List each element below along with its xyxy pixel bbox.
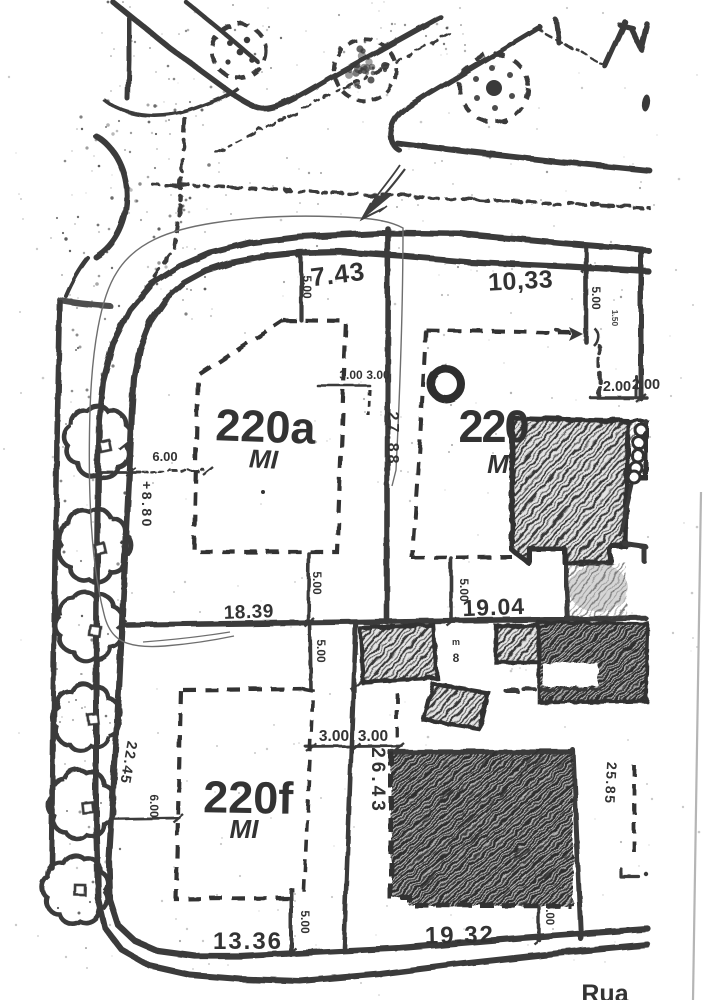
- svg-text:220: 220: [458, 401, 528, 452]
- svg-text:MI: MI: [248, 443, 279, 475]
- svg-text:2.00: 2.00: [632, 377, 660, 393]
- svg-text:1.50: 1.50: [610, 310, 620, 327]
- svg-text:Rua: Rua: [581, 980, 629, 1000]
- svg-text:m: m: [452, 637, 460, 647]
- svg-text:3.00: 3.00: [358, 728, 388, 745]
- svg-text:3.00: 3.00: [366, 368, 390, 382]
- svg-text:5.00: 5.00: [298, 910, 312, 934]
- svg-text:27.88: 27.88: [384, 411, 401, 466]
- svg-text:6.00: 6.00: [152, 449, 177, 464]
- svg-text:MI: MI: [230, 814, 260, 844]
- svg-text:M: M: [487, 449, 510, 479]
- svg-text:13.36: 13.36: [213, 928, 283, 955]
- svg-text:3.00: 3.00: [339, 368, 363, 382]
- svg-text:10,33: 10,33: [487, 265, 553, 296]
- svg-text:2.00: 2.00: [603, 379, 631, 395]
- svg-text:5.00: 5.00: [589, 286, 603, 310]
- svg-text:25.85: 25.85: [602, 762, 620, 805]
- svg-text:5.00: 5.00: [457, 578, 471, 602]
- svg-text:3.00: 3.00: [319, 728, 349, 745]
- svg-text:5.00: 5.00: [314, 639, 328, 663]
- svg-text:5.00: 5.00: [310, 571, 324, 595]
- svg-text:19.32: 19.32: [425, 921, 496, 949]
- svg-text:26.43: 26.43: [367, 747, 388, 815]
- svg-text:+8.80: +8.80: [139, 481, 155, 529]
- svg-text:5.00: 5.00: [300, 275, 314, 299]
- svg-text:6.00: 6.00: [147, 794, 161, 818]
- svg-text:8: 8: [453, 651, 460, 665]
- svg-text:5.00: 5.00: [543, 903, 555, 925]
- svg-text:18.39: 18.39: [223, 601, 274, 624]
